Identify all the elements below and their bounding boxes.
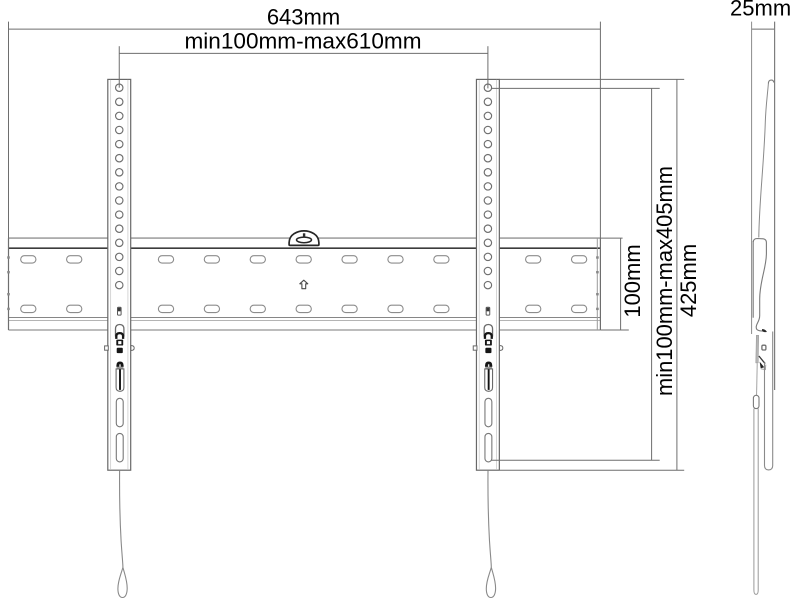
svg-text:425mm: 425mm — [676, 244, 701, 317]
svg-text:25mm: 25mm — [730, 0, 791, 21]
svg-text:100mm: 100mm — [620, 244, 645, 317]
svg-text:min100mm-max405mm: min100mm-max405mm — [652, 166, 677, 396]
svg-text:min100mm-max610mm: min100mm-max610mm — [185, 28, 422, 53]
svg-text:643mm: 643mm — [267, 5, 340, 30]
